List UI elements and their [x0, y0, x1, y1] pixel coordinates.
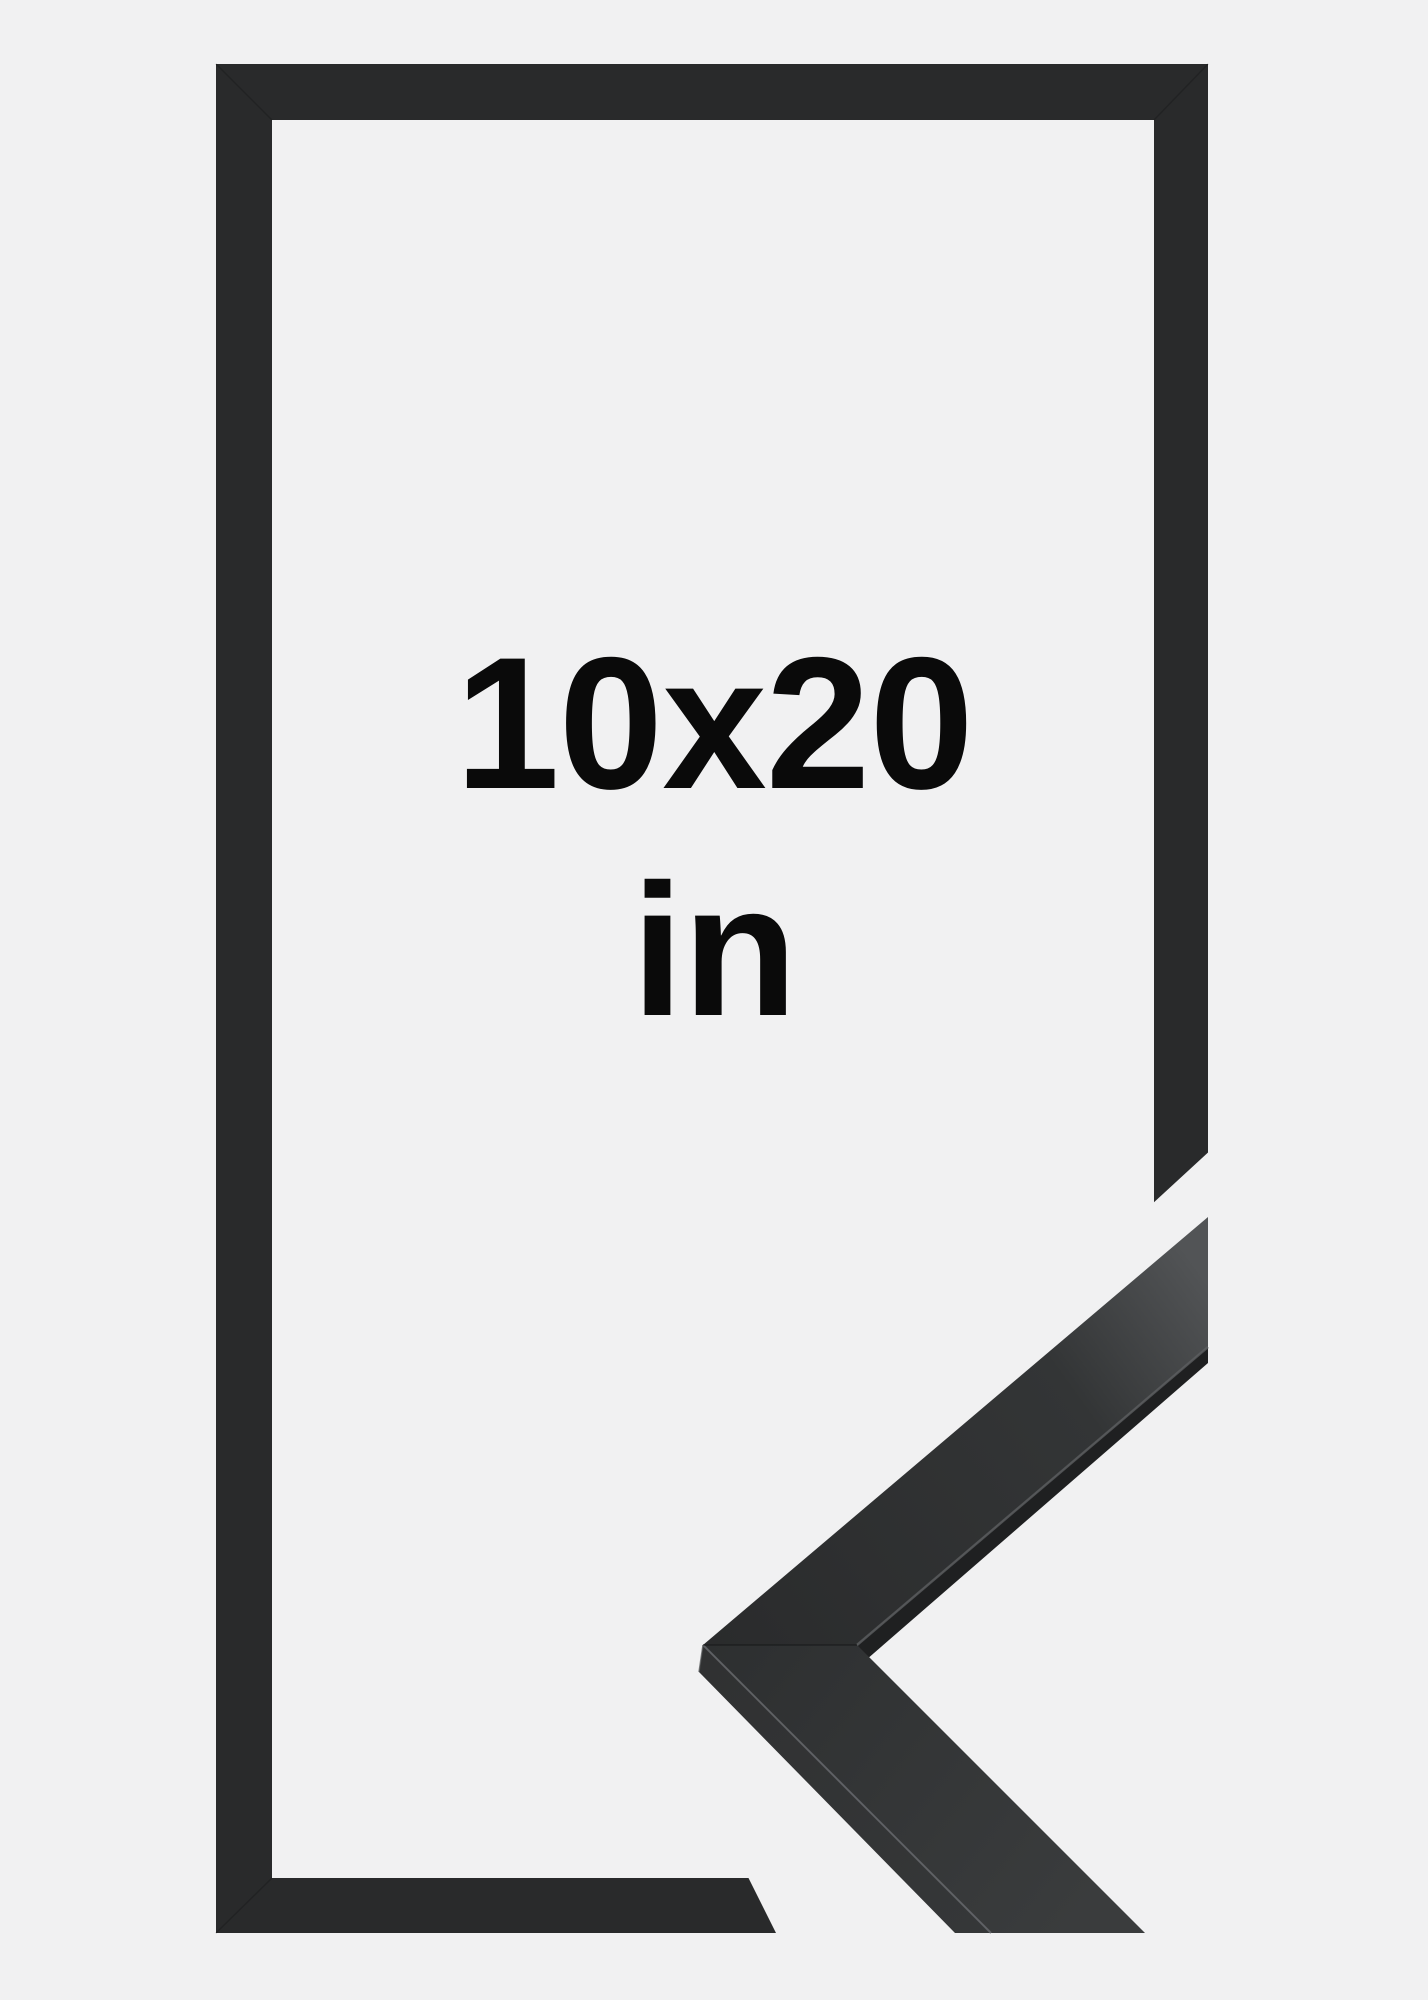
frame-product-photo: 10x20 in [0, 0, 1428, 2000]
product-photo-stage: 10x20 in [0, 0, 1428, 2000]
unit-label: in [631, 845, 796, 1055]
size-label: 10x20 [455, 618, 973, 828]
